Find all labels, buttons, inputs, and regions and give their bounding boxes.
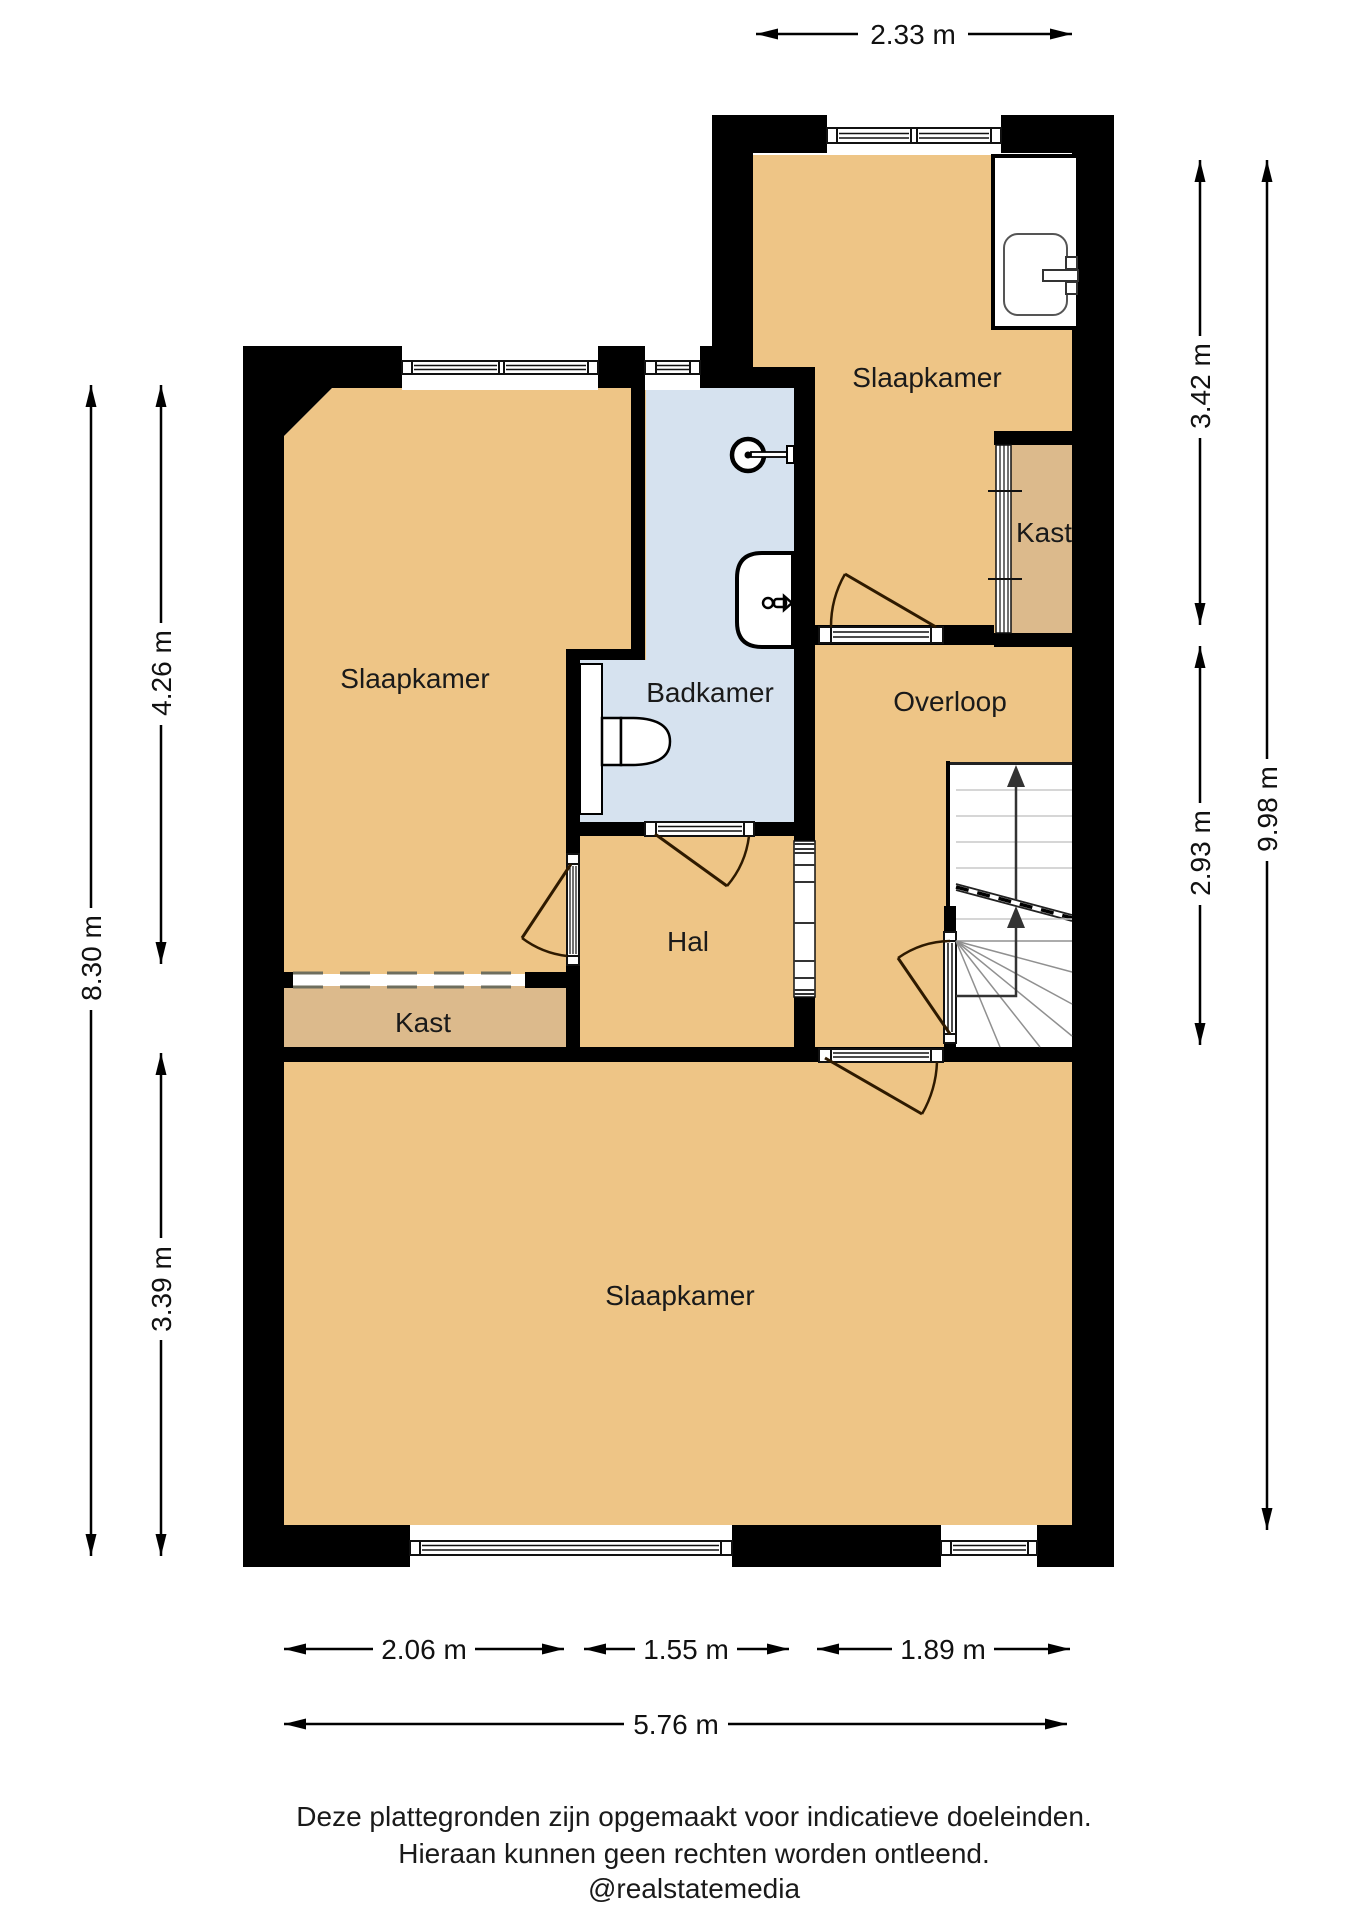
svg-text:3.39 m: 3.39 m — [146, 1246, 177, 1332]
svg-text:5.76 m: 5.76 m — [633, 1709, 719, 1740]
svg-text:9.98 m: 9.98 m — [1252, 766, 1283, 852]
svg-text:Badkamer: Badkamer — [646, 677, 774, 708]
svg-text:Kast: Kast — [395, 1007, 451, 1038]
svg-text:1.55 m: 1.55 m — [643, 1634, 729, 1665]
svg-text:1.89 m: 1.89 m — [900, 1634, 986, 1665]
svg-text:Overloop: Overloop — [893, 686, 1007, 717]
svg-text:2.33 m: 2.33 m — [870, 19, 956, 50]
svg-text:2.06 m: 2.06 m — [381, 1634, 467, 1665]
svg-text:Slaapkamer: Slaapkamer — [852, 362, 1001, 393]
svg-text:Slaapkamer: Slaapkamer — [605, 1280, 754, 1311]
svg-text:Hal: Hal — [667, 926, 709, 957]
svg-text:3.42 m: 3.42 m — [1185, 343, 1216, 429]
svg-text:Slaapkamer: Slaapkamer — [340, 663, 489, 694]
svg-text:@realstatemedia: @realstatemedia — [588, 1873, 801, 1904]
svg-text:8.30 m: 8.30 m — [76, 915, 107, 1001]
svg-text:2.93 m: 2.93 m — [1185, 810, 1216, 896]
svg-text:Kast: Kast — [1016, 517, 1072, 548]
svg-text:Hieraan kunnen geen rechten wo: Hieraan kunnen geen rechten worden ontle… — [398, 1838, 990, 1869]
svg-text:Deze plattegronden zijn opgema: Deze plattegronden zijn opgemaakt voor i… — [296, 1801, 1091, 1832]
svg-text:4.26 m: 4.26 m — [146, 630, 177, 716]
